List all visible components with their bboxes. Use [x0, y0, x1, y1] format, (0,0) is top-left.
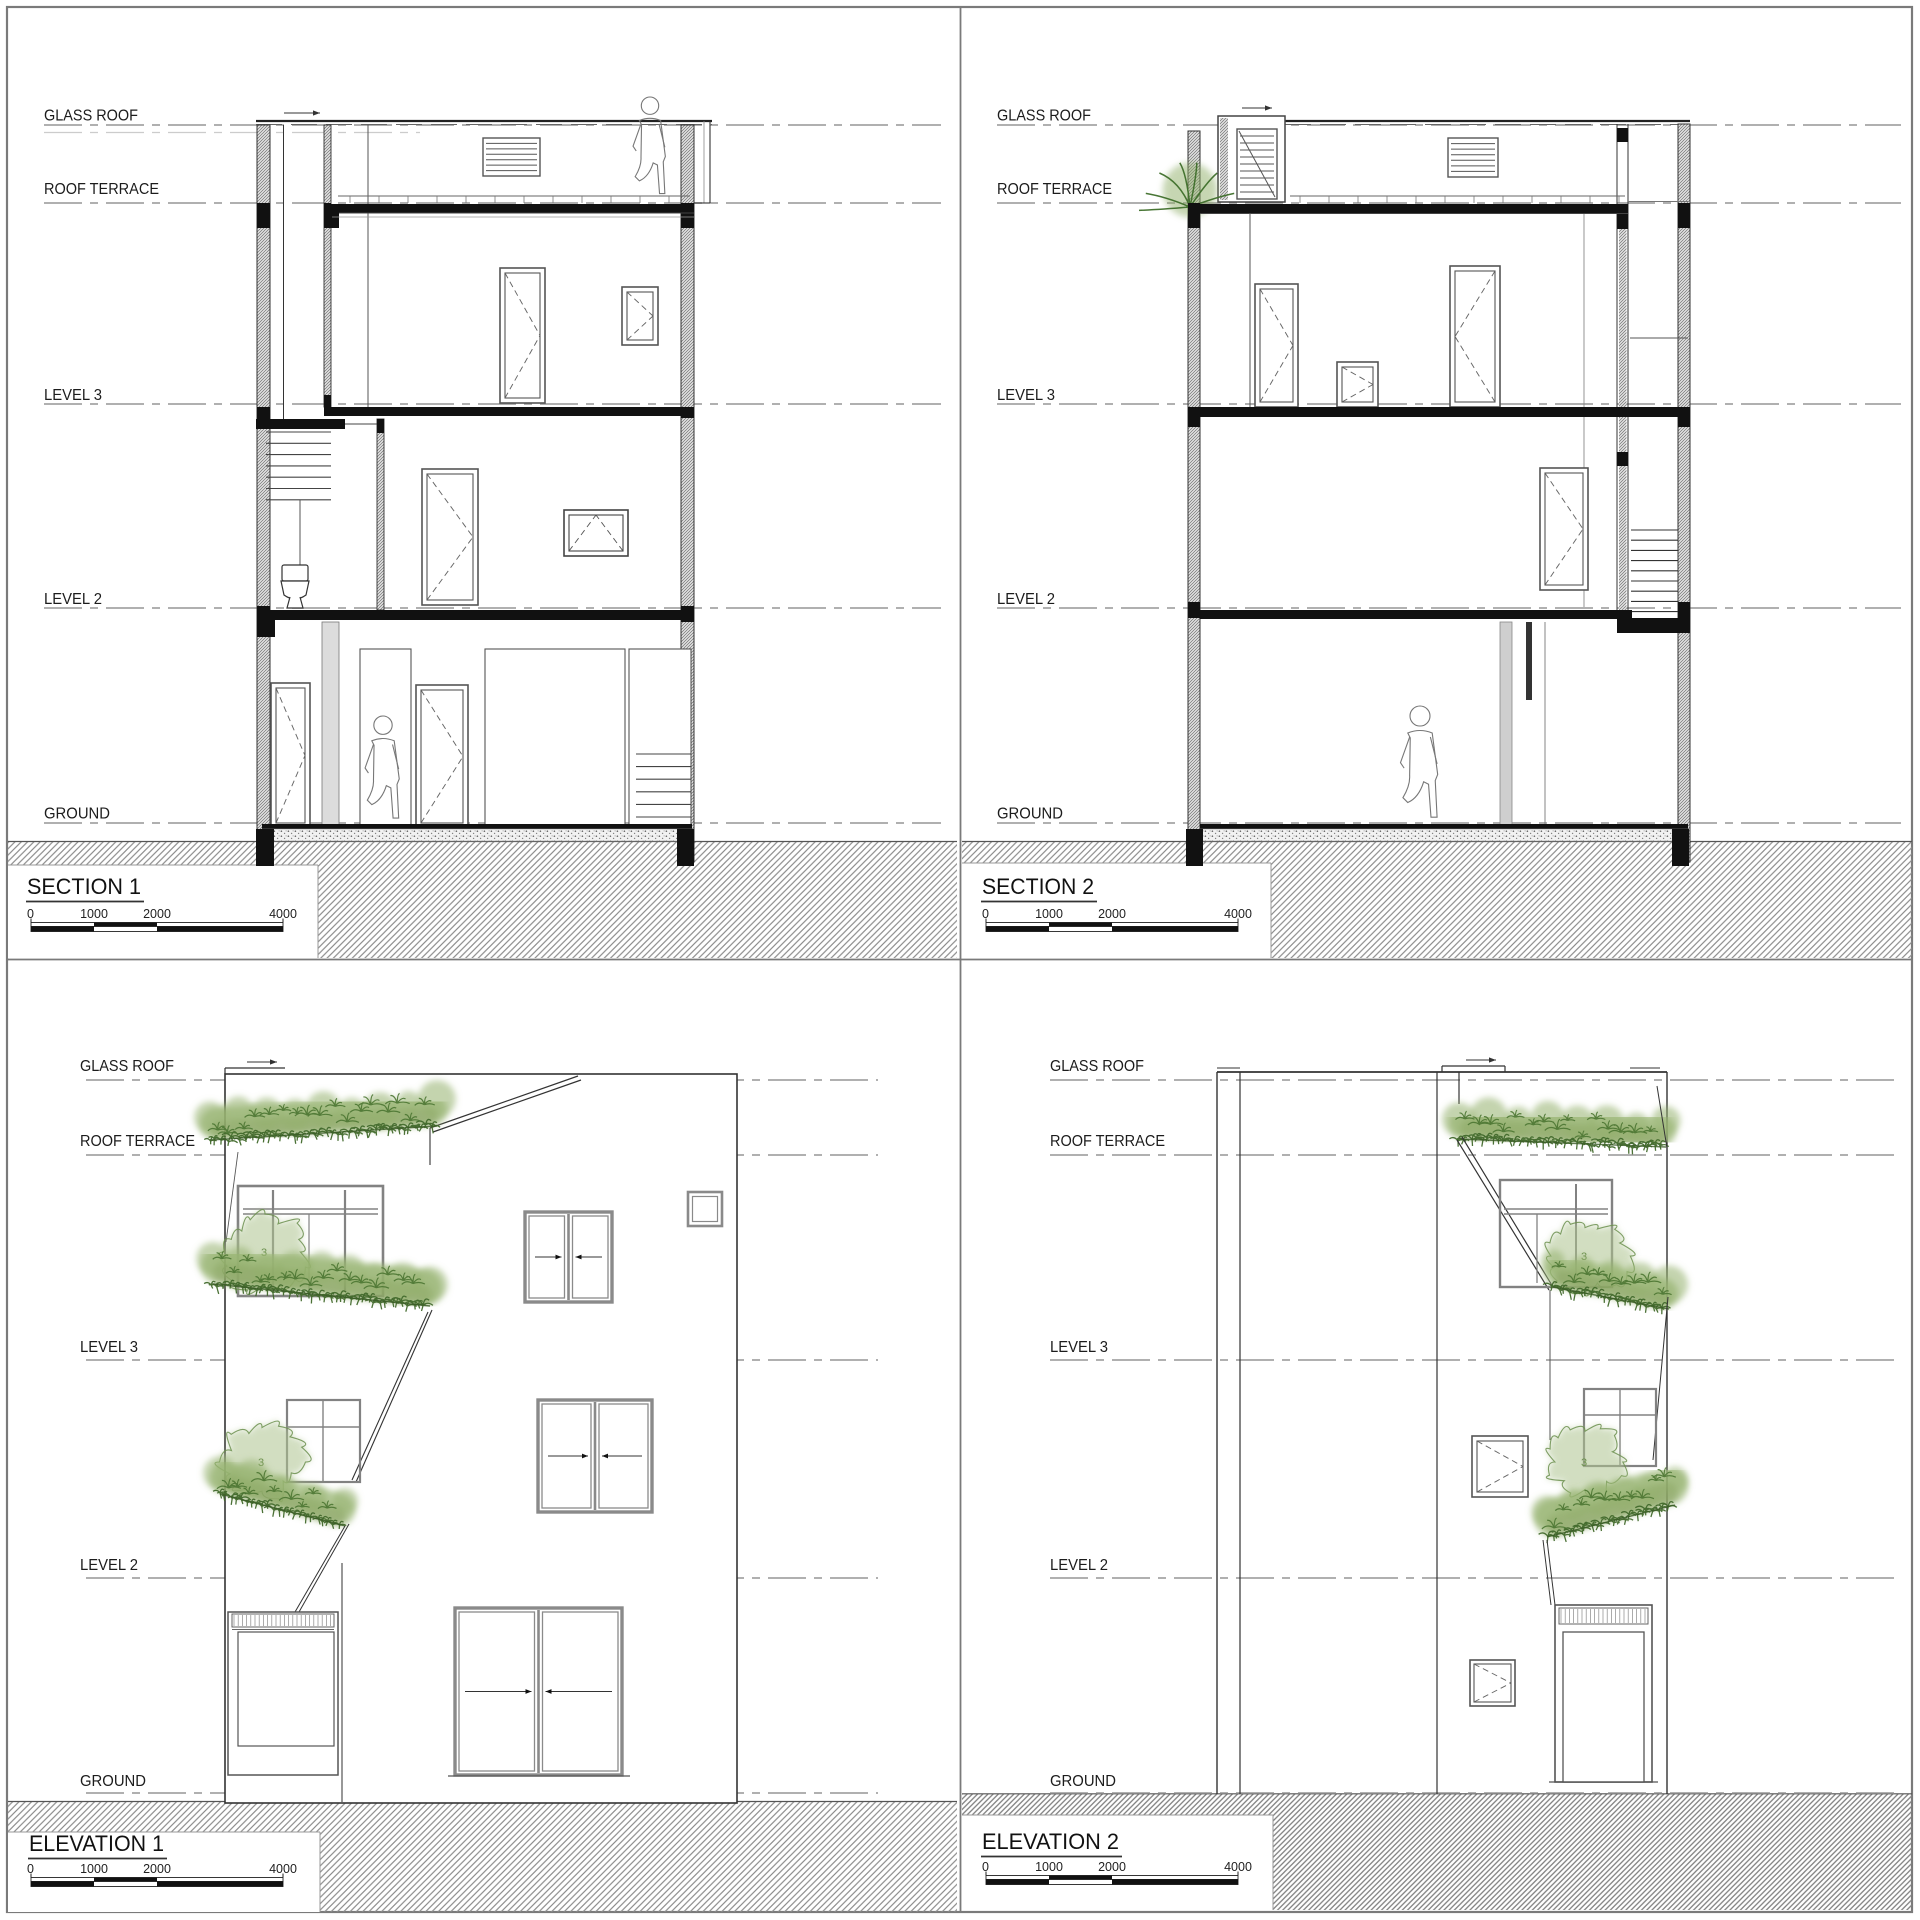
svg-text:1000: 1000 [80, 1862, 108, 1876]
svg-text:ELEVATION 2: ELEVATION 2 [982, 1829, 1119, 1854]
svg-text:ELEVATION 1: ELEVATION 1 [29, 1831, 164, 1856]
svg-text:SECTION 2: SECTION 2 [982, 874, 1094, 899]
svg-text:LEVEL 3: LEVEL 3 [1050, 1339, 1108, 1356]
svg-text:LEVEL 3: LEVEL 3 [80, 1339, 138, 1356]
svg-text:2000: 2000 [143, 1862, 171, 1876]
svg-text:ROOF TERRACE: ROOF TERRACE [80, 1133, 195, 1150]
svg-text:GLASS ROOF: GLASS ROOF [80, 1058, 174, 1075]
svg-text:LEVEL 3: LEVEL 3 [44, 387, 102, 404]
svg-text:LEVEL 2: LEVEL 2 [1050, 1557, 1108, 1574]
svg-text:ROOF TERRACE: ROOF TERRACE [1050, 1133, 1165, 1150]
svg-text:2000: 2000 [143, 907, 171, 921]
svg-text:GLASS ROOF: GLASS ROOF [1050, 1058, 1144, 1075]
svg-text:ROOF TERRACE: ROOF TERRACE [44, 181, 159, 198]
svg-text:LEVEL 3: LEVEL 3 [997, 387, 1055, 404]
svg-text:GLASS ROOF: GLASS ROOF [44, 108, 138, 125]
svg-text:LEVEL 2: LEVEL 2 [44, 591, 102, 608]
svg-text:SECTION 1: SECTION 1 [27, 874, 141, 899]
svg-text:GROUND: GROUND [44, 806, 110, 823]
svg-text:2000: 2000 [1098, 1860, 1126, 1874]
svg-text:GLASS ROOF: GLASS ROOF [997, 108, 1091, 125]
svg-text:LEVEL 2: LEVEL 2 [80, 1557, 138, 1574]
svg-text:1000: 1000 [80, 907, 108, 921]
svg-text:1000: 1000 [1035, 907, 1063, 921]
svg-text:ROOF TERRACE: ROOF TERRACE [997, 181, 1112, 198]
svg-text:1000: 1000 [1035, 1860, 1063, 1874]
svg-text:3: 3 [1581, 1457, 1587, 1469]
svg-text:GROUND: GROUND [80, 1773, 146, 1790]
svg-text:2000: 2000 [1098, 907, 1126, 921]
svg-text:LEVEL 2: LEVEL 2 [997, 591, 1055, 608]
svg-text:GROUND: GROUND [997, 806, 1063, 823]
svg-text:GROUND: GROUND [1050, 1773, 1116, 1790]
